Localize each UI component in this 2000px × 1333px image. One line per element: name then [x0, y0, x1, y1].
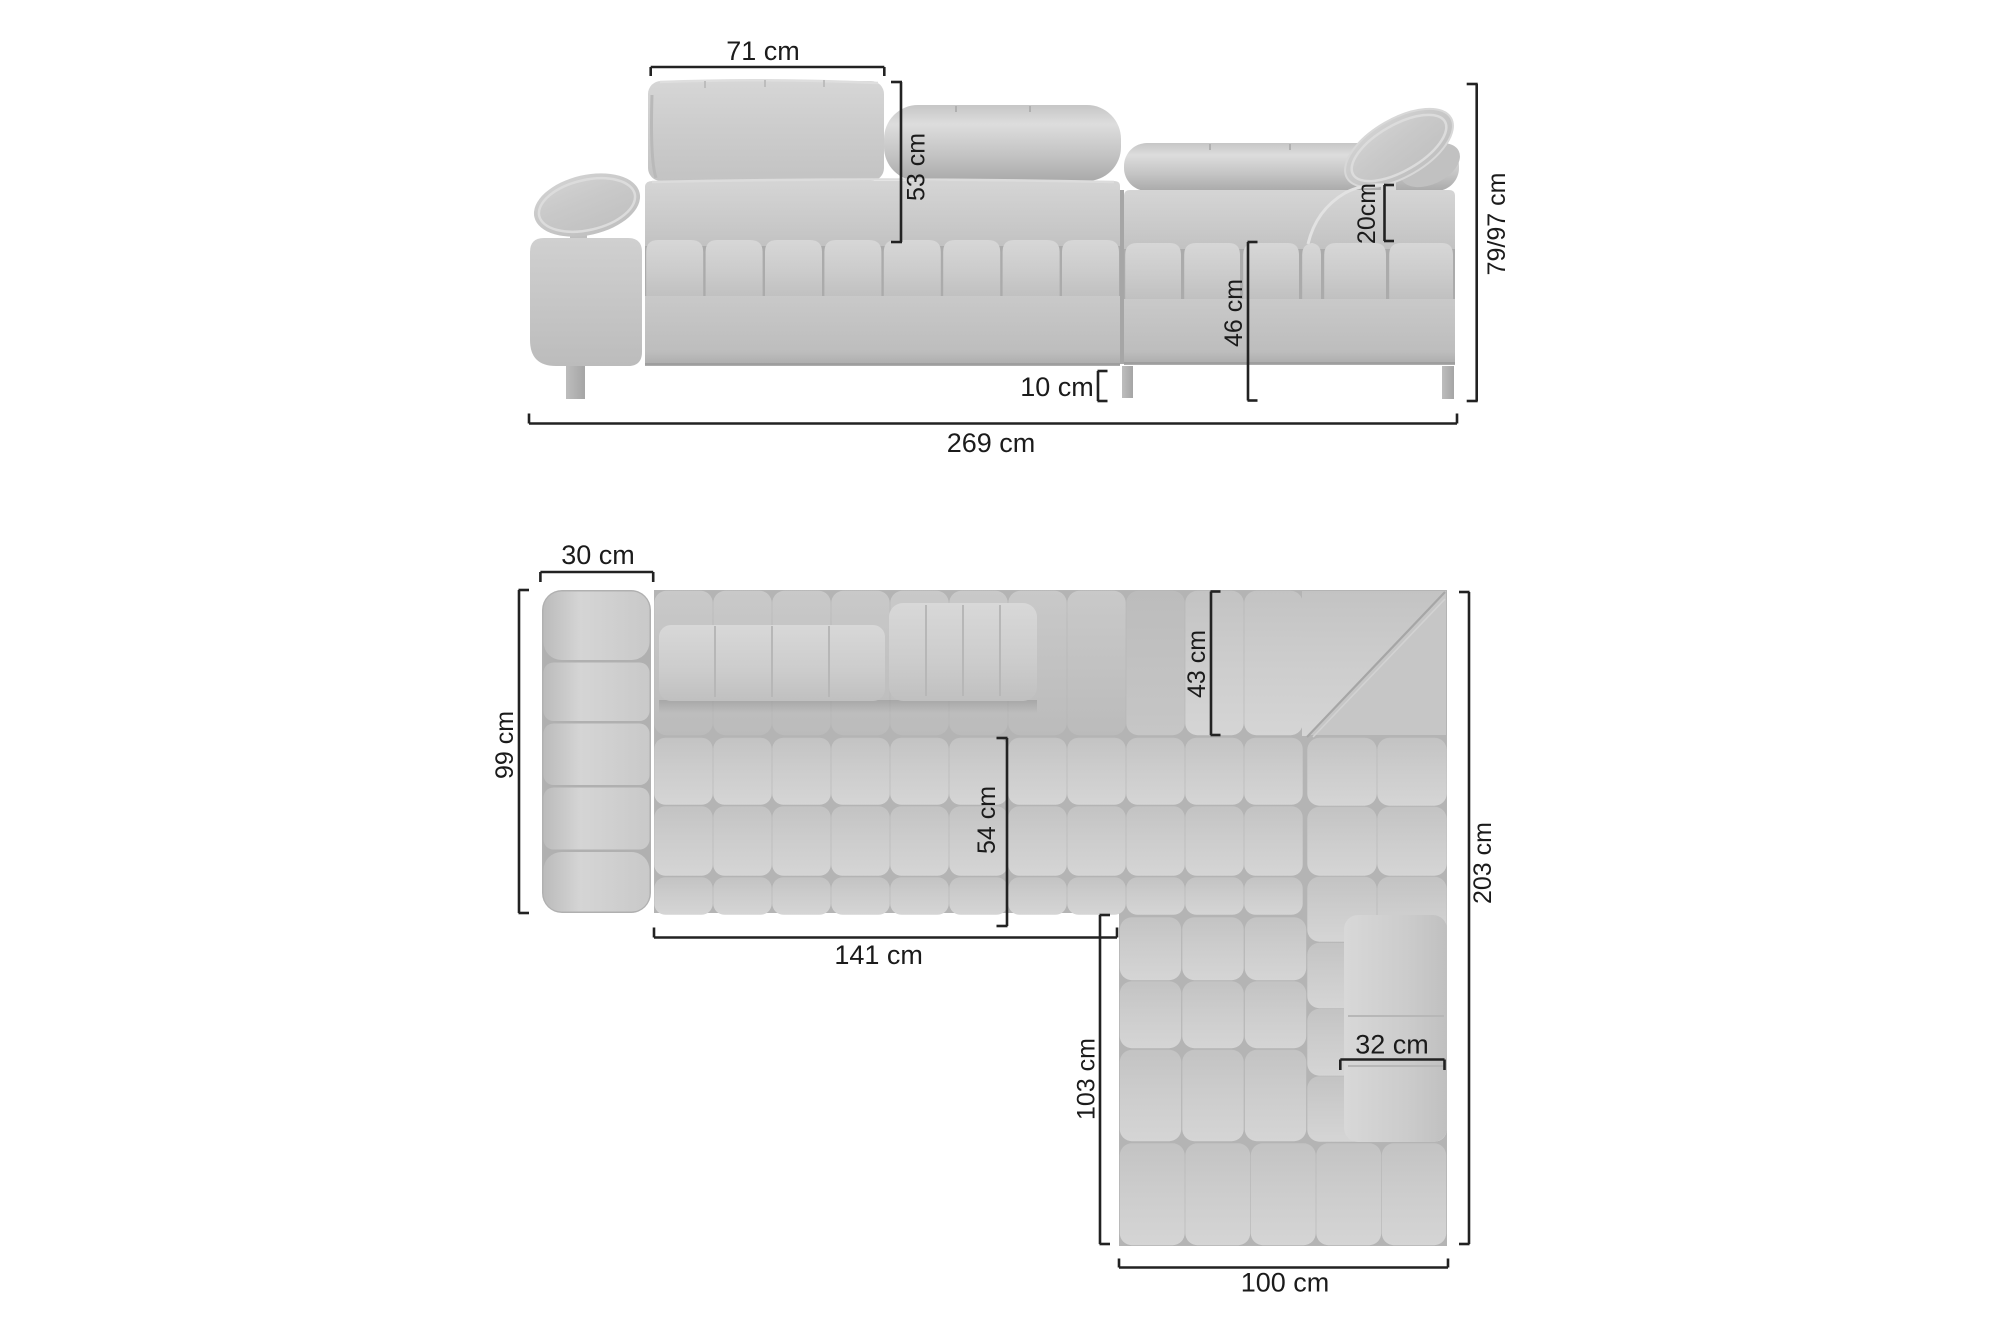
- svg-text:32 cm: 32 cm: [1355, 1030, 1429, 1060]
- svg-text:71 cm: 71 cm: [726, 36, 800, 66]
- svg-text:203 cm: 203 cm: [1469, 822, 1497, 904]
- svg-text:30 cm: 30 cm: [561, 540, 635, 570]
- svg-text:100 cm: 100 cm: [1241, 1268, 1330, 1298]
- svg-text:10 cm: 10 cm: [1020, 372, 1094, 402]
- svg-text:54 cm: 54 cm: [973, 786, 1001, 854]
- svg-text:43 cm: 43 cm: [1183, 630, 1211, 698]
- svg-text:103 cm: 103 cm: [1073, 1038, 1101, 1120]
- svg-text:53 cm: 53 cm: [903, 133, 931, 201]
- svg-text:20cm: 20cm: [1353, 183, 1381, 244]
- svg-text:99 cm: 99 cm: [491, 711, 519, 779]
- svg-text:269 cm: 269 cm: [947, 428, 1036, 458]
- svg-text:141 cm: 141 cm: [834, 940, 923, 970]
- svg-text:79/97 cm: 79/97 cm: [1483, 173, 1511, 276]
- svg-text:46 cm: 46 cm: [1220, 279, 1248, 347]
